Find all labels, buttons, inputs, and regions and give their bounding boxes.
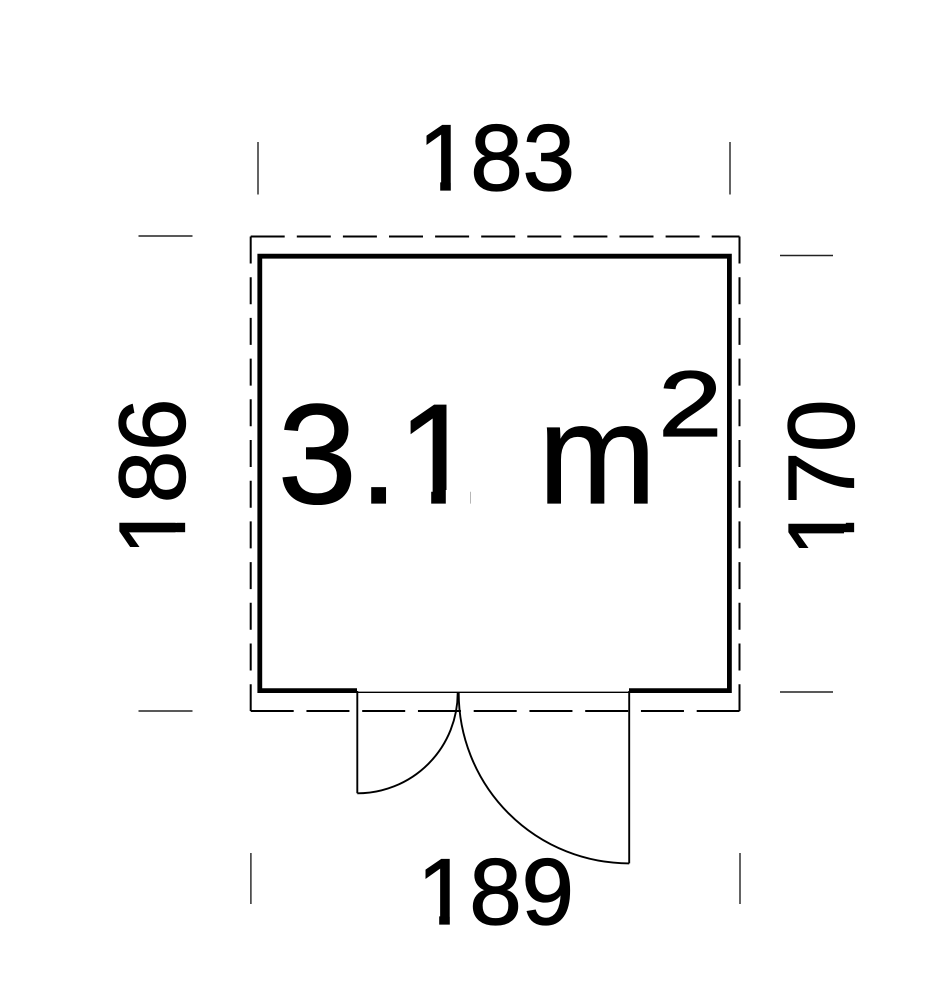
svg-text:170: 170 bbox=[768, 400, 873, 557]
svg-text:189: 189 bbox=[417, 839, 574, 944]
svg-text:3.1 m: 3.1 m bbox=[278, 375, 657, 534]
svg-text:186: 186 bbox=[100, 399, 205, 556]
svg-text:183: 183 bbox=[418, 105, 575, 210]
svg-text:2: 2 bbox=[658, 352, 722, 456]
